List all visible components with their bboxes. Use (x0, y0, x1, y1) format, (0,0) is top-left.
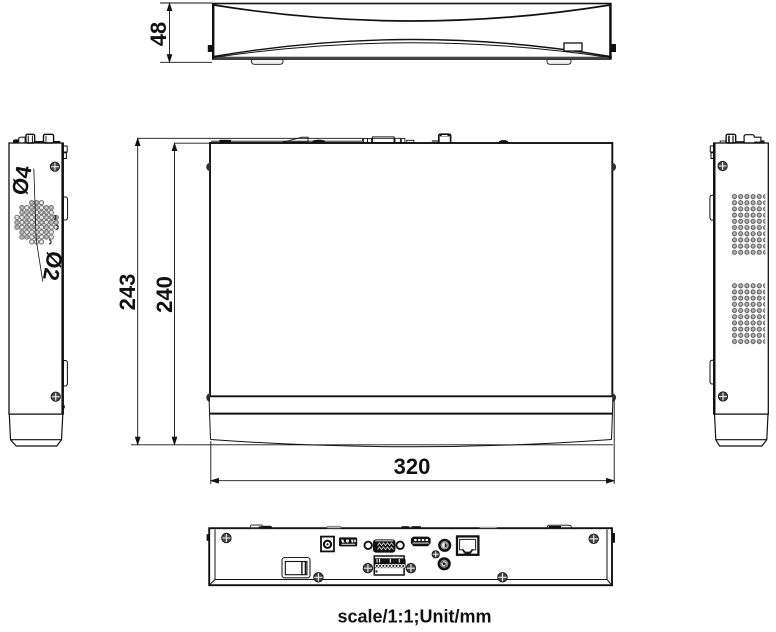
svg-text:240: 240 (152, 276, 177, 313)
svg-text:48: 48 (146, 22, 171, 46)
svg-text:Ø4: Ø4 (7, 163, 37, 197)
svg-text:243: 243 (115, 274, 140, 311)
svg-text:Ø2: Ø2 (38, 249, 68, 282)
svg-text:scale/1:1;Unit/mm: scale/1:1;Unit/mm (337, 607, 491, 627)
svg-text:320: 320 (394, 454, 431, 479)
